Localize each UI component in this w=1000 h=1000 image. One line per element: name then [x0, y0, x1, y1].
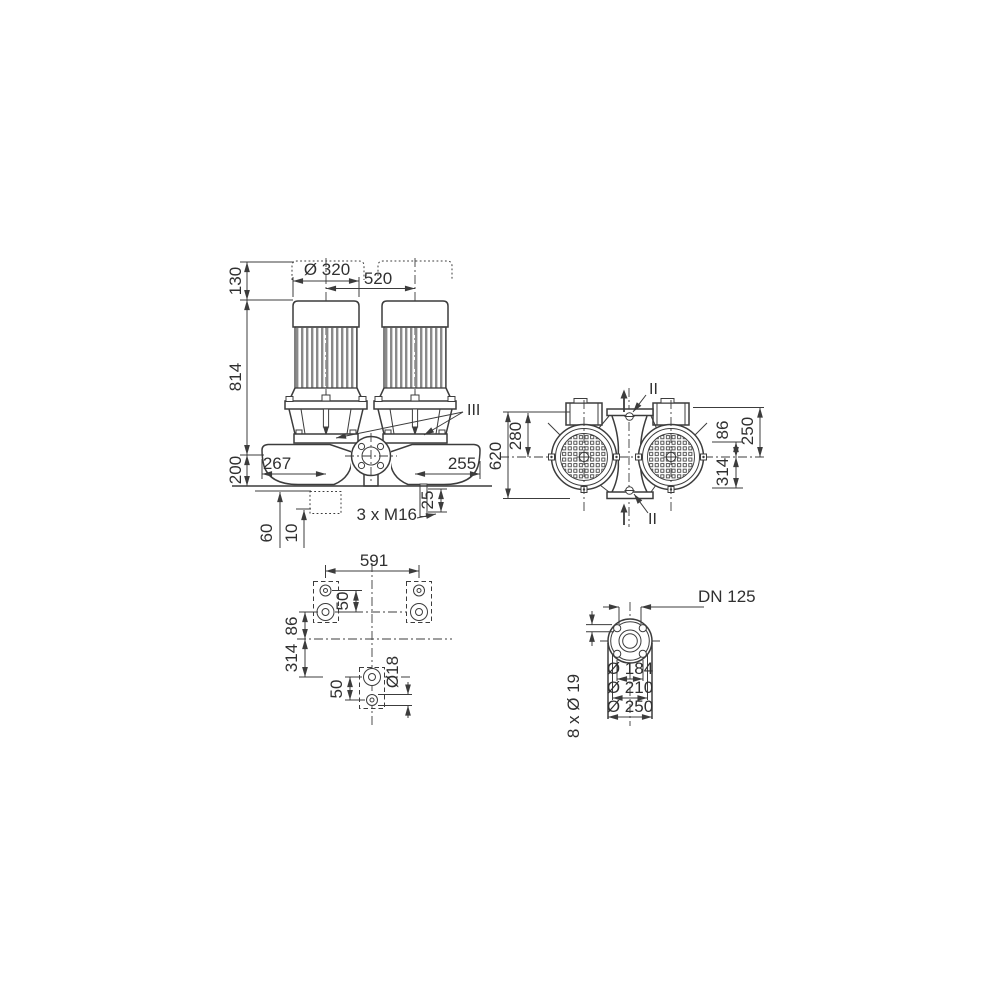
dim-face-diameter: Ø 184 [607, 659, 653, 678]
dim-motor-diameter: Ø 320 [304, 260, 350, 279]
dim-130: 130 [226, 267, 245, 295]
dim-200: 200 [226, 456, 245, 484]
dim-250: 250 [738, 417, 757, 445]
dim-620: 620 [486, 442, 505, 470]
dim-591: 591 [360, 551, 388, 570]
label-dn125: DN 125 [698, 587, 756, 606]
dim-50-lower: 50 [327, 680, 346, 699]
section-iii-label: III [467, 402, 480, 419]
dim-314-plan: 314 [282, 644, 301, 672]
dim-86-top: 86 [713, 421, 732, 440]
label-bolt-holes: 8 x Ø 19 [564, 674, 583, 738]
dim-60: 60 [257, 524, 276, 543]
dim-255: 255 [448, 454, 476, 473]
background [0, 0, 1000, 1000]
drawing-canvas: 130 814 200 Ø 320 520 267 255 60 1 [0, 0, 1000, 1000]
dim-280: 280 [506, 422, 525, 450]
dim-814: 814 [226, 363, 245, 391]
flange-diameter-dimensions: Ø 184 Ø 210 Ø 250 [607, 659, 653, 717]
dim-267: 267 [263, 454, 291, 473]
dim-50-upper: 50 [333, 592, 352, 611]
pump-dimension-drawing: 130 814 200 Ø 320 520 267 255 60 1 [0, 0, 1000, 1000]
label-tappings: 3 x M16 [357, 505, 417, 524]
dim-86-plan: 86 [282, 617, 301, 636]
section-ii-bottom-label: II [648, 511, 657, 528]
dim-bolt-circle: Ø 210 [607, 678, 653, 697]
dim-hole-diameter: Ø18 [383, 656, 402, 688]
section-ii-top-label: II [649, 381, 658, 398]
flange-face [608, 619, 652, 663]
dim-10: 10 [282, 524, 301, 543]
dim-520: 520 [364, 269, 392, 288]
dim-outer-diameter: Ø 250 [607, 697, 653, 716]
dim-314-top: 314 [713, 458, 732, 486]
dim-25: 25 [418, 491, 437, 510]
